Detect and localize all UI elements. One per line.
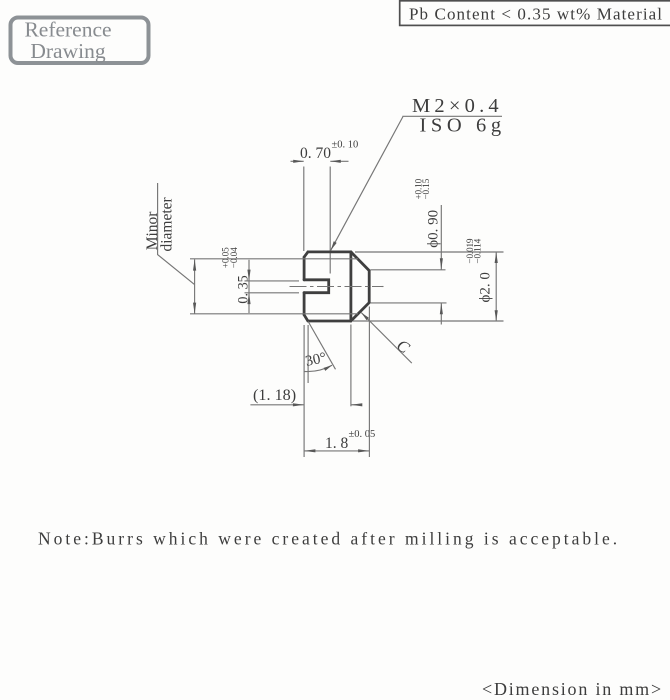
svg-text:ISO 6g: ISO 6g <box>420 115 506 137</box>
svg-text:−0.15: −0.15 <box>422 178 432 199</box>
svg-text:±0. 05: ±0. 05 <box>349 429 376 440</box>
svg-text:Note:Burrs which were created: Note:Burrs which were created after mill… <box>38 529 620 549</box>
svg-text:(1. 18): (1. 18) <box>253 386 296 404</box>
svg-text:0. 70: 0. 70 <box>300 145 331 162</box>
svg-text:Drawing: Drawing <box>30 39 105 63</box>
svg-text:ϕ2. 0: ϕ2. 0 <box>478 272 494 302</box>
svg-text:1. 8: 1. 8 <box>325 435 349 452</box>
svg-text:diameter: diameter <box>158 196 175 251</box>
svg-text:<Dimension in mm>: <Dimension in mm> <box>482 679 663 699</box>
svg-text:Pb Content < 0.35 wt% Material: Pb Content < 0.35 wt% Material <box>409 5 663 24</box>
svg-text:±0. 10: ±0. 10 <box>332 140 359 151</box>
svg-text:ϕ0. 90: ϕ0. 90 <box>426 210 442 248</box>
svg-text:−0.114: −0.114 <box>474 238 484 263</box>
svg-text:−0.04: −0.04 <box>230 247 240 268</box>
